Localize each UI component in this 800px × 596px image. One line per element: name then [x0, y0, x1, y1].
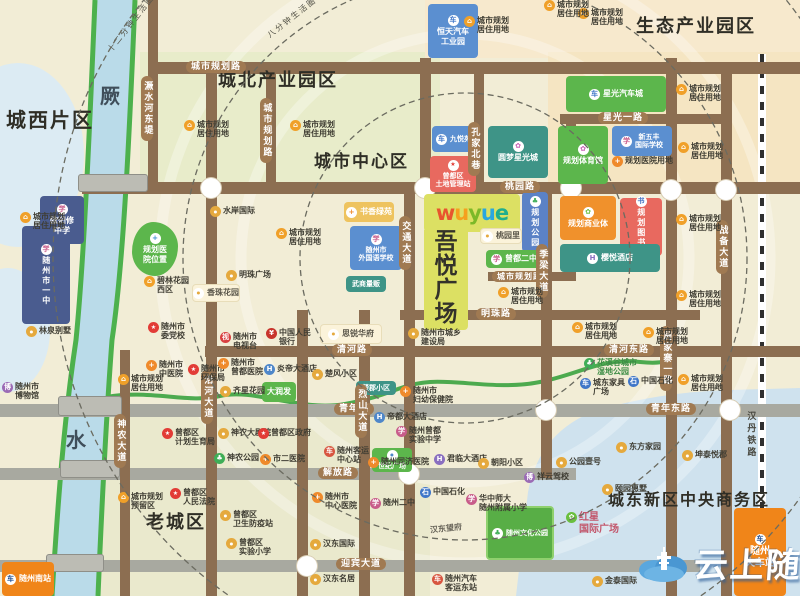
maternal-child-hospital: +随州市妇幼保健院 [400, 386, 453, 405]
bilin-garden-west: ⌂碧林花园西区 [144, 276, 189, 295]
label-line: 居住用地 [591, 17, 623, 26]
label-line: 院位置 [143, 255, 167, 265]
label-text: 曾都区土地管理站 [436, 172, 471, 189]
district-chengxi: 城西片区 [6, 108, 94, 132]
label-line: 居住用地 [691, 383, 723, 392]
label-text: 曾都二中 [505, 254, 537, 264]
xingguang-auto-city: 车星光汽车城 [566, 76, 666, 112]
cross-icon: + [218, 358, 229, 369]
label-text: 市二医院 [273, 454, 305, 465]
label-line: 东方家园 [629, 442, 661, 451]
label-line: 居住用地 [33, 221, 65, 230]
label-line: 建设局 [421, 337, 461, 346]
handong-international: ●汉东国际 [310, 539, 355, 550]
label-line: 楚风小区 [325, 369, 357, 378]
family-planning-bureau: ★曾都区计划生育局 [162, 428, 215, 447]
label-text: 明珠广场 [239, 270, 271, 281]
label-line: 委党校 [161, 331, 185, 340]
residential-planning-land: ⌂城市规划居住用地 [464, 16, 509, 35]
label-text: 帝都大酒店 [387, 412, 427, 423]
label-text: 颐园惠墅 [615, 484, 647, 495]
wuyue-name-char: 广 [435, 278, 458, 302]
flower-icon: ✿ [513, 141, 524, 152]
label-text: 城市规划居住用地 [289, 228, 321, 247]
dot-icon: ● [682, 450, 693, 461]
label-text: 汉东名居 [323, 574, 355, 585]
label-line: 中医院 [159, 369, 183, 378]
road-label: 交通大道 [399, 216, 411, 270]
label-line: 老城区 [146, 512, 206, 533]
suizhou-museum: 博随州市博物馆 [2, 382, 39, 401]
roundabout-intersection [297, 556, 317, 576]
kuntai-yuejun: ●坤泰悦郡 [682, 450, 727, 461]
label-text: 金泰国际 [605, 576, 637, 587]
label-text: 城市规划居住用地 [33, 212, 65, 231]
label-line: 炎帝大酒店 [277, 364, 317, 373]
district-old-town: 老城区 [146, 512, 206, 534]
road-label: 解放路 [318, 467, 358, 479]
label-text: 武商量贩 [352, 280, 380, 288]
label-line: 城西 [6, 108, 50, 132]
label-text: 城市规划居住用地 [585, 322, 617, 341]
label-line: 居住用地 [689, 93, 721, 102]
taoyuanli: ●桃园里 [480, 228, 522, 244]
home-icon: ⌂ [544, 0, 555, 11]
label-line: 城市中心区 [314, 152, 409, 172]
label-line: 水岸国际 [223, 206, 255, 215]
cross-icon: + [368, 457, 379, 468]
suizhou-central-hospital: +随州市中心医院 [312, 492, 357, 511]
dot-icon: ● [592, 576, 603, 587]
home-icon: ⌂ [676, 290, 687, 301]
residential-planning-land: ⌂城市规划居住用地 [20, 212, 65, 231]
dot-icon: ● [556, 457, 567, 468]
hotel-icon: H [587, 253, 598, 264]
label-line: 曾都区 [443, 172, 464, 180]
shuian-international: ●水岸国际 [210, 206, 255, 217]
label-text: 随州市一中 [41, 256, 51, 306]
label-line: 规划医 [143, 245, 167, 255]
home-icon: ⌂ [678, 142, 689, 153]
hotel-blue-icon: H [264, 364, 275, 375]
road-label: 烈山大道 [355, 384, 367, 438]
label-text: 随州市中心医院 [325, 492, 357, 511]
road-label: 神农大道 [114, 414, 126, 468]
label-line: 居住用地 [197, 129, 229, 138]
residential-planning-land: ⌂城市规划居住用地 [544, 0, 589, 19]
label-line: 园区 [716, 16, 756, 37]
roundabout-intersection [720, 400, 740, 420]
label-text: 随州文化公园 [506, 529, 548, 537]
label-line: 居住用地 [477, 25, 509, 34]
label-text: 齐星花园 [233, 386, 265, 397]
label-line: 规划医院用地 [625, 156, 673, 165]
label-line: 中国石化 [433, 487, 465, 496]
star-icon: ★ [162, 428, 173, 439]
city-no2-hospital: +市二医院 [260, 454, 305, 465]
dot-icon: ● [226, 538, 237, 549]
label-text: 随州市外国语学校 [359, 246, 394, 263]
label-line: 随州二中 [383, 498, 415, 507]
label-line: 居住用地 [131, 383, 163, 392]
planning-reserved-land: ⌂城市规划预留区 [118, 492, 163, 511]
label-text: 城市中心区 [314, 152, 409, 172]
wuyue-logo-letter: w [436, 201, 454, 225]
school-icon: 学 [466, 494, 477, 505]
star-icon: ★ [148, 322, 159, 333]
party-school: ★随州市委党校 [148, 322, 185, 341]
label-line: 颐园惠墅 [615, 484, 647, 493]
label-text: 林泉别墅 [39, 326, 71, 337]
residential-planning-land: ⌂城市规划居住用地 [572, 322, 617, 341]
label-text: 规划医院用地 [625, 156, 673, 167]
zengdu-hospital: +随州市曾都医院 [218, 358, 263, 377]
label-text: 城市规划居住用地 [557, 0, 589, 19]
label-line: 国际广场 [579, 524, 619, 536]
handong-mingju: ●汉东名居 [310, 574, 355, 585]
suizhou-culture-park: ♣随州文化公园 [486, 506, 554, 560]
label-text: 规划体育馆 [563, 156, 603, 166]
residential-planning-land: ⌂城市规划居住用地 [676, 214, 721, 233]
label-text: 城西片区 [6, 108, 94, 132]
school-icon: 学 [41, 244, 52, 255]
road-label: 汉丹铁路 [744, 406, 756, 464]
label-line: 新五丰 [639, 133, 660, 141]
wuyue-logo: wuyue [436, 201, 508, 225]
label-text: 圆梦星光城 [498, 153, 538, 163]
dot-icon: ● [312, 369, 323, 380]
tree-icon: ♣ [584, 358, 595, 369]
wuyue-logo-panel: wuyue [424, 194, 520, 232]
dot-icon: ● [602, 484, 613, 495]
linquan-villa: ●林泉别墅 [26, 326, 71, 337]
home-icon: ⌂ [676, 214, 687, 225]
river-bridge [78, 174, 148, 192]
residential-planning-land: ⌂城市规划居住用地 [184, 120, 229, 139]
cross-blue-icon: + [150, 233, 161, 244]
tcm-hospital: +随州市中医院 [146, 360, 183, 379]
label-text: 城市规划居住用地 [691, 142, 723, 161]
train-icon: 车 [5, 574, 16, 585]
label-text: 楚风小区 [325, 369, 357, 380]
label-text: 随州二中 [383, 498, 415, 509]
label-line: 坤泰悦郡 [695, 450, 727, 459]
dot-icon: ● [616, 442, 627, 453]
qixing-garden: ●齐星花园 [220, 386, 265, 397]
flower-icon: ✿ [578, 144, 589, 155]
label-line: 圆梦星光城 [498, 153, 538, 163]
label-text: 曾都区政府 [271, 428, 311, 439]
wuyue-logo-letter: y [468, 201, 481, 225]
label-line: 星光汽车城 [603, 89, 643, 99]
wuyue-name-char: 吾 [435, 230, 458, 254]
label-text: 碧林花园西区 [157, 276, 189, 295]
road-label: 孔家北巷 [468, 122, 480, 176]
sirui-huafu: ●思锐华府 [320, 324, 382, 344]
label-text: 随州市博物馆 [15, 382, 39, 401]
district-city-center: 城市中心区 [314, 152, 409, 172]
label-line: 碧林花园 [157, 276, 189, 285]
label-text: 城市规划居住用地 [591, 8, 623, 27]
label-line: 博物馆 [15, 391, 39, 400]
label-text: 规划医院位置 [143, 245, 167, 264]
label-text: 城北产业园区 [218, 70, 338, 91]
label-text: 新五丰国际学校 [635, 133, 663, 150]
label-text: 汉东国际 [323, 539, 355, 550]
dot-icon: ● [210, 206, 221, 217]
label-line: 中心医院 [325, 501, 357, 510]
label-text: 东方家园 [629, 442, 661, 453]
label-line: 客运东站 [445, 583, 477, 592]
label-text: 祥云驾校 [537, 472, 569, 483]
planned-commercial-complex: ✿规划商业体 [560, 196, 616, 240]
label-text: 公园壹号 [569, 457, 601, 468]
star-icon: ★ [448, 160, 459, 171]
yuanmeng-starlight-city: ✿圆梦星光城 [488, 126, 548, 178]
label-text: 随州同济医院 [381, 457, 429, 468]
label-line: 大润发 [267, 387, 291, 397]
label-line: 规划公园 [530, 208, 540, 248]
label-line: 书香绿苑 [360, 207, 392, 217]
dot-icon: ● [26, 326, 37, 337]
label-line: 公园壹号 [569, 457, 601, 466]
watermark: 云上随州 [638, 538, 800, 587]
residential-planning-land: ⌂城市规划居住用地 [678, 142, 723, 161]
label-line: 片区 [50, 108, 94, 132]
label-text: 城市规划居住用地 [477, 16, 509, 35]
label-text: 城市规划居住用地 [689, 84, 721, 103]
river-bridge [60, 460, 120, 478]
label-text: 规划商业体 [568, 219, 608, 229]
xinwufeng-intl-school: 学新五丰国际学校 [612, 126, 672, 156]
label-line: 园区 [298, 70, 338, 91]
label-line: 居住用地 [656, 336, 688, 345]
shennong-park: ♣神农公园 [214, 453, 259, 464]
home-icon: ⌂ [572, 322, 583, 333]
label-text: 随州市电视台 [233, 332, 257, 351]
label-line: 居住用地 [689, 299, 721, 308]
label-text: 随州市妇幼保健院 [413, 386, 453, 405]
label-text: 曾都区人民法院 [183, 488, 215, 507]
label-line: 桃园里 [496, 231, 520, 241]
bus-icon: 车 [432, 574, 443, 585]
label-text: 随州汽车客运东站 [445, 574, 477, 593]
sinopec-icon: 石 [420, 487, 431, 498]
peoples-court: ★曾都区人民法院 [170, 488, 215, 507]
label-text: 老城区 [146, 512, 206, 533]
wushang-mart: 武商量贩 [346, 276, 386, 292]
zengdu-experimental-middle-school: 学随州曾都实验中学 [396, 426, 441, 445]
label-text: 水岸国际 [223, 206, 255, 217]
home-icon: ⌂ [276, 228, 287, 239]
label-text: 城市规划预留区 [131, 492, 163, 511]
label-text: 炎帝大酒店 [277, 364, 317, 375]
car-icon: 车 [580, 378, 591, 389]
star-icon: ★ [170, 488, 181, 499]
label-line: 朝阳小区 [491, 458, 523, 467]
tree-icon: ♣ [492, 528, 503, 539]
suizhou-no2-middle-school: 学随州二中 [370, 498, 415, 509]
label-line: 银行 [279, 337, 311, 346]
label-text: 曾都区计划生育局 [175, 428, 215, 447]
wuyue-logo-letter: u [481, 201, 495, 225]
dot-icon: ● [310, 539, 321, 550]
label-text: 坤泰悦郡 [695, 450, 727, 461]
road-segment [206, 62, 217, 596]
xiangyun-driving-school: 博祥云驾校 [524, 472, 569, 483]
label-line: 随州同济医院 [381, 457, 429, 466]
label-text: 规划公园 [530, 208, 540, 248]
label-text: 曾都区卫生防疫站 [233, 510, 273, 529]
label-line: 居住用地 [557, 9, 589, 18]
car-icon: 车 [448, 15, 459, 26]
label-line: 思锐华府 [342, 329, 374, 339]
passenger-transport-center: 车随州客运中心站 [324, 446, 369, 465]
watermark-text: 云上随州 [692, 538, 800, 587]
museum-icon: 博 [524, 472, 535, 483]
jintai-international: ●金泰国际 [592, 576, 637, 587]
residential-planning-land: ⌂城市规划居住用地 [678, 374, 723, 393]
home-icon: ⌂ [498, 287, 509, 298]
chufeng-community: ●楚风小区 [312, 369, 357, 380]
label-text: 思锐华府 [342, 329, 374, 339]
label-line: 生态产业 [636, 16, 716, 37]
roundabout-intersection [716, 180, 736, 200]
bank-icon: ¥ [266, 328, 277, 339]
label-line: 香珠花园 [207, 288, 239, 298]
zengdu-district-government: ★曾都区政府 [258, 428, 311, 439]
hotel-blue-icon: H [374, 412, 385, 423]
label-line: 规划商业体 [568, 219, 608, 229]
label-text: 桃园里 [496, 231, 520, 241]
home-icon: ⌂ [676, 84, 687, 95]
dot-icon: ● [408, 328, 419, 339]
label-line: 规划体育馆 [563, 156, 603, 166]
label-text: 神农公园 [227, 453, 259, 464]
road-label: 城市规划路 [186, 61, 246, 73]
urban-construction-bureau: ●随州市城乡建设局 [408, 328, 461, 347]
residential-planning-land: ⌂城市规划居住用地 [676, 290, 721, 309]
label-line: 齐星花园 [233, 386, 265, 395]
dot-icon: ● [218, 428, 229, 439]
label-line: 计划生育局 [175, 437, 215, 446]
label-line: 人民法院 [183, 497, 215, 506]
label-line: 居住用地 [303, 129, 335, 138]
label-line: 国际学校 [635, 141, 663, 149]
wuyue-logo-letter: u [454, 201, 468, 225]
bus-east-station: 车随州汽车客运东站 [432, 574, 477, 593]
flower-green-icon: ✿ [583, 207, 594, 218]
label-line: 神农公园 [227, 453, 259, 462]
road-label: 清河路 [332, 344, 372, 356]
residential-planning-land: ⌂城市规划居住用地 [290, 120, 335, 139]
xiangzhu-garden: ●香珠花园 [192, 284, 240, 302]
ccnu-affiliated-primary: 学华中师大随州附属小学 [466, 494, 527, 513]
label-line: 随州附属小学 [479, 503, 527, 512]
label-line: 外国语学校 [359, 254, 394, 262]
label-text: 朝阳小区 [491, 458, 523, 469]
flower-green-icon: ✿ [566, 512, 577, 523]
river-bridge [58, 396, 122, 416]
dot-icon: ● [220, 386, 231, 397]
roundabout-intersection [661, 180, 681, 200]
book-icon: 书 [636, 196, 647, 207]
label-text: 香珠花园 [207, 288, 239, 298]
yingyue-hotel: H樱悦酒店 [560, 244, 660, 272]
label-line: 西区 [157, 285, 189, 294]
car-icon: 车 [436, 134, 447, 145]
label-text: 城市规划居住用地 [691, 374, 723, 393]
yandi-hotel: H炎帝大酒店 [264, 364, 317, 375]
tv-station: 视随州市电视台 [220, 332, 257, 351]
road-segment [205, 346, 800, 357]
label-line: 居住用地 [691, 151, 723, 160]
home-icon: ⌂ [464, 16, 475, 27]
label-text: 曾都区实验小学 [239, 538, 271, 557]
road-segment [297, 310, 308, 596]
label-line: 随州文化公园 [506, 529, 548, 537]
label-text: 城东家具广场 [593, 378, 625, 397]
label-line: 随州市 [366, 246, 387, 254]
cross-icon: + [312, 492, 323, 503]
label-line: 市二医院 [273, 454, 305, 463]
dot-icon: ● [226, 270, 237, 281]
home-icon: ⌂ [290, 120, 301, 131]
car-icon: 车 [589, 89, 600, 100]
tongji-hospital: +随州同济医院 [368, 457, 429, 468]
peoples-bank-of-china: ¥中国人民银行 [266, 328, 311, 347]
yiyuan-huishu: ●颐园惠墅 [602, 484, 647, 495]
label-line: 电视台 [233, 341, 257, 350]
label-line: 预留区 [131, 501, 163, 510]
label-line: 曾都区政府 [271, 428, 311, 437]
residential-planning-land: ⌂城市规划居住用地 [276, 228, 321, 247]
label-text: 中国石化 [641, 376, 673, 387]
label-line: 汉东国际 [323, 539, 355, 548]
dot-icon: ● [478, 458, 489, 469]
label-line: 居住用地 [511, 296, 543, 305]
mingzhu-plaza: ●明珠广场 [226, 270, 271, 281]
label-line: 实验中学 [409, 435, 441, 444]
label-line: 明珠广场 [239, 270, 271, 279]
tv-icon: 视 [220, 332, 231, 343]
star-icon: ★ [188, 364, 199, 375]
label-text: 随州客运中心站 [337, 446, 369, 465]
planned-park: ♣规划公园 [522, 192, 548, 252]
label-line: 居住用地 [689, 223, 721, 232]
label-line: 樱悦酒店 [601, 253, 633, 263]
sinopec-icon: 石 [628, 376, 639, 387]
label-line: 妇幼保健院 [413, 395, 453, 404]
label-text: 中国石化 [433, 487, 465, 498]
planned-gymnasium: ✿规划体育馆 [558, 126, 608, 184]
label-text: 城市规划居住用地 [689, 290, 721, 309]
label-line: 城北产业 [218, 70, 298, 91]
label-text: 生态产业园区 [636, 16, 756, 37]
school-icon: 学 [491, 254, 502, 265]
home-icon: ⌂ [144, 276, 155, 287]
label-line: 红星 [579, 512, 619, 524]
label-line: 武商量贩 [352, 280, 380, 288]
label-text: 城市规划居住用地 [303, 120, 335, 139]
road-label: 青年东路 [646, 403, 696, 415]
label-line: 金泰国际 [605, 576, 637, 585]
road-label: 迎宾大道 [336, 558, 386, 570]
dot-icon: ● [482, 231, 493, 242]
label-line: 林泉别墅 [39, 326, 71, 335]
dongfang-home: ●东方家园 [616, 442, 661, 453]
dot-icon: ● [328, 329, 339, 340]
